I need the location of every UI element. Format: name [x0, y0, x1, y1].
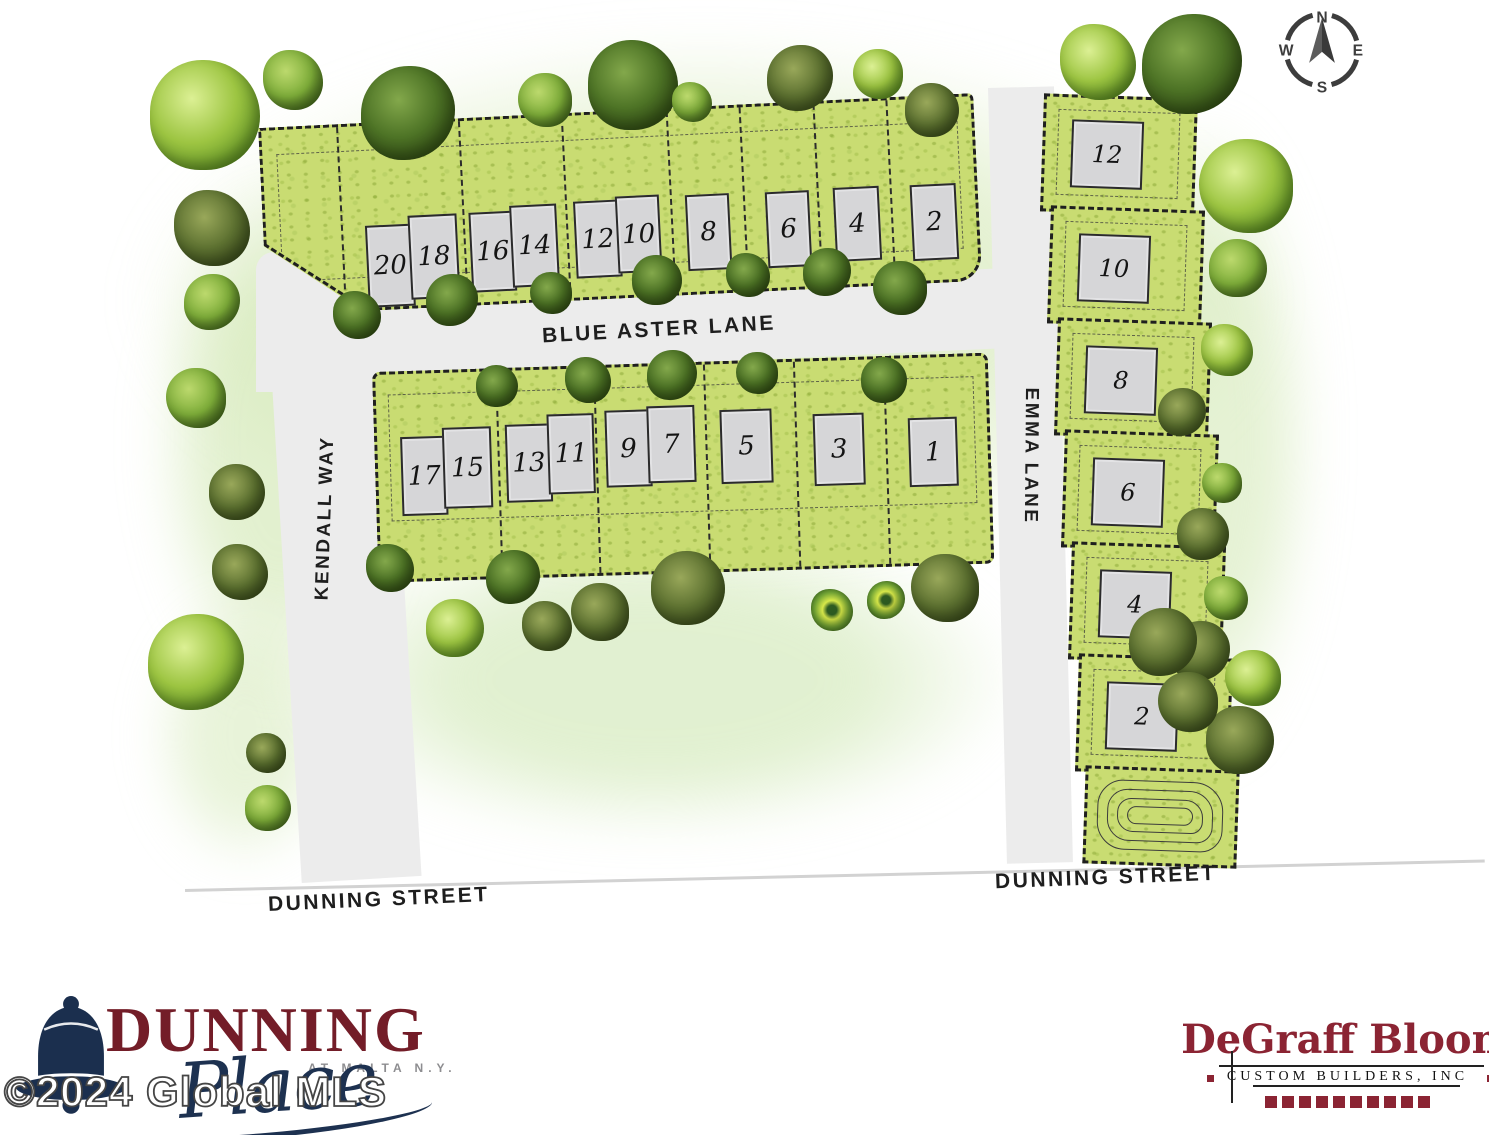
- tree: [212, 544, 268, 600]
- builder-subtitle: CUSTOM BUILDERS, INC: [1227, 1069, 1468, 1084]
- lot-10e-house: 10: [1077, 233, 1151, 303]
- emma-lane-label: EMMA LANE: [985, 398, 1075, 513]
- lot-18-house: 18: [407, 213, 460, 299]
- compass-n: N: [1316, 9, 1327, 26]
- lot-15-house: 15: [442, 426, 494, 508]
- tree: [166, 368, 226, 428]
- tree: [571, 583, 629, 641]
- compass-w: W: [1279, 43, 1294, 60]
- tree: [148, 614, 244, 710]
- east-lot-6: 6: [1061, 429, 1219, 552]
- lot-6e-house: 6: [1091, 457, 1165, 527]
- compass-s: S: [1317, 79, 1327, 96]
- tree: [853, 49, 903, 99]
- lot-5-house: 5: [719, 408, 773, 484]
- tree: [522, 601, 572, 651]
- compass-rose: N E S W: [1276, 4, 1368, 96]
- east-lot-10: 10: [1047, 205, 1205, 328]
- builder-logo: DeGraff Bloom CUSTOM BUILDERS, INC: [1205, 1016, 1489, 1108]
- tree: [209, 464, 265, 520]
- mls-watermark: ©2024 Global MLS: [4, 1068, 387, 1116]
- tree: [150, 60, 260, 170]
- lot-2e-house: 2: [1105, 681, 1179, 751]
- tree: [184, 274, 240, 330]
- tree: [174, 190, 250, 266]
- lot-12e-house: 12: [1070, 119, 1144, 189]
- lot-11-house: 11: [546, 413, 595, 494]
- lot-4e-house: 4: [1098, 569, 1172, 639]
- lot-7-house: 7: [646, 405, 696, 483]
- tree: [867, 581, 905, 619]
- east-lot-8: 8: [1054, 317, 1212, 440]
- builder-name-right: Bloom: [1369, 1016, 1489, 1063]
- lot-2-house: 2: [910, 183, 960, 261]
- lot-8-house: 8: [685, 193, 733, 271]
- north-block: 20 18 16 14 12 10 8 6 4 2: [258, 93, 982, 316]
- builder-square-row: [1205, 1096, 1489, 1108]
- lot-4-house: 4: [833, 186, 883, 262]
- lot-8e-house: 8: [1084, 345, 1158, 415]
- kendall-way-label: KENDALL WAY: [270, 405, 380, 630]
- tree: [1060, 24, 1136, 100]
- lot-14-house: 14: [509, 204, 560, 288]
- south-block: 17 15 13 11 9 7 5 3 1: [372, 353, 994, 583]
- east-lot-4: 4: [1068, 541, 1226, 664]
- dunning-street-east-label: DUNNING STREET: [995, 862, 1217, 894]
- tree: [245, 785, 291, 831]
- east-lot-12: 12: [1040, 93, 1198, 216]
- east-lot-2: 2: [1075, 653, 1233, 776]
- lot-3-house: 3: [813, 413, 866, 487]
- site-plan-map: 20 18 16 14 12 10 8 6 4 2 17 15 13 11 9 …: [0, 0, 1489, 1135]
- builder-name-left: DeGraff: [1181, 1016, 1355, 1063]
- tree: [263, 50, 323, 110]
- compass-e: E: [1353, 43, 1363, 60]
- tree: [426, 599, 484, 657]
- lot-17-house: 17: [400, 436, 448, 516]
- lot-6-house: 6: [765, 190, 813, 268]
- lot-13-house: 13: [505, 423, 553, 502]
- tree: [246, 733, 286, 773]
- stormwater-basin: [1082, 765, 1239, 868]
- tree: [811, 589, 853, 631]
- lot-9-house: 9: [604, 409, 652, 487]
- lot-10-house: 10: [615, 195, 663, 274]
- lot-1-house: 1: [908, 417, 959, 488]
